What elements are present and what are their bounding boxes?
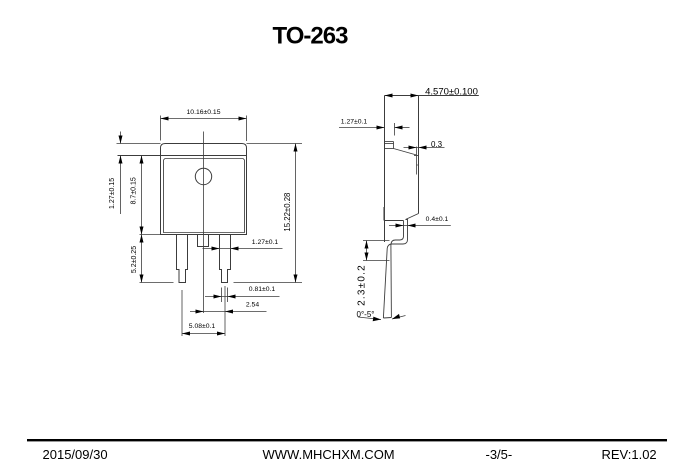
svg-text:4.570±0.100: 4.570±0.100 [425,87,478,98]
svg-text:15.22±0.28: 15.22±0.28 [283,193,292,232]
svg-text:-3/5-: -3/5- [486,447,513,462]
svg-text:2.3±0.2: 2.3±0.2 [357,264,368,306]
svg-text:2015/09/30: 2015/09/30 [43,447,108,462]
svg-text:1.27±0.1: 1.27±0.1 [252,239,279,246]
svg-text:TO-263: TO-263 [273,23,349,50]
svg-text:8.7±0.15: 8.7±0.15 [131,177,138,204]
svg-text:0.3: 0.3 [431,140,443,149]
svg-text:5.2±0.25: 5.2±0.25 [131,246,138,273]
svg-text:REV:1.02: REV:1.02 [602,447,657,462]
svg-text:10.16±0.15: 10.16±0.15 [187,109,221,116]
svg-text:WWW.MHCHXM.COM: WWW.MHCHXM.COM [263,447,395,462]
svg-text:5.08±0.1: 5.08±0.1 [189,323,216,330]
svg-text:1.27±0.1: 1.27±0.1 [341,118,368,125]
svg-text:0.4±0.1: 0.4±0.1 [426,216,449,223]
svg-text:0.81±0.1: 0.81±0.1 [249,286,276,293]
svg-text:2.54: 2.54 [246,302,259,309]
svg-text:1.27±0.15: 1.27±0.15 [109,178,116,209]
svg-text:0°-5°: 0°-5° [357,310,375,319]
